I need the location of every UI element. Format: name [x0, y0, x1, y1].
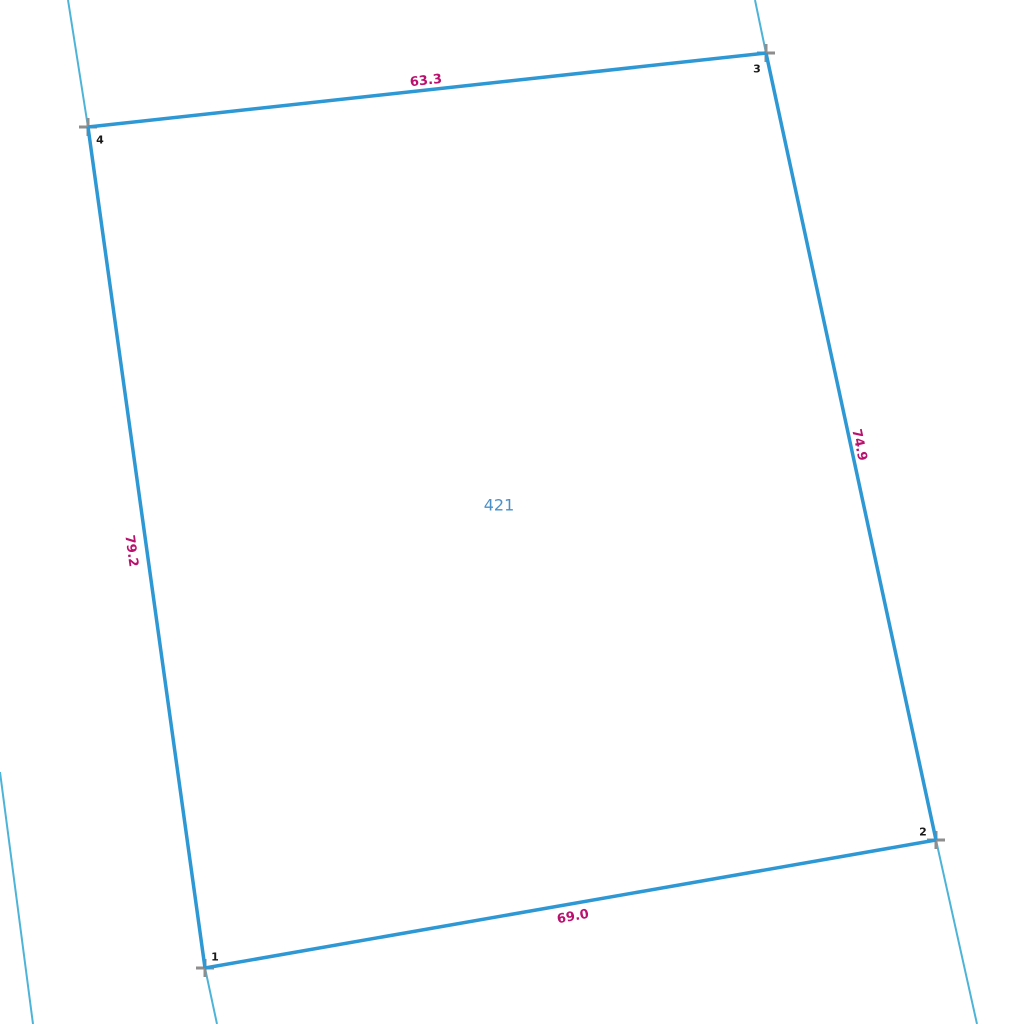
boundary-extension-line: [0, 772, 33, 1024]
vertex-number-3: 3: [753, 63, 761, 76]
vertex-number-4: 4: [96, 134, 104, 147]
edge-length-label-4-1: 79.2: [121, 534, 140, 568]
map-canvas[interactable]: 63.374.969.079.21234421: [0, 0, 1024, 1024]
edge-length-label-1-2: 69.0: [556, 907, 590, 927]
vertex-number-2: 2: [919, 826, 927, 839]
parcel-edge-4-1: [88, 127, 205, 968]
parcel-edge-1-2: [205, 840, 936, 968]
boundary-extension-line: [205, 968, 217, 1024]
parcel-number-label: 421: [484, 496, 515, 515]
parcel-edge-3-2: [766, 53, 936, 840]
boundary-extension-line: [68, 0, 88, 127]
boundary-extension-line: [936, 840, 977, 1024]
boundary-extension-line: [755, 0, 766, 53]
map-viewport: 63.374.969.079.21234421: [0, 0, 1024, 1024]
vertex-number-1: 1: [211, 951, 219, 964]
parcel-edge-4-3: [88, 53, 766, 127]
